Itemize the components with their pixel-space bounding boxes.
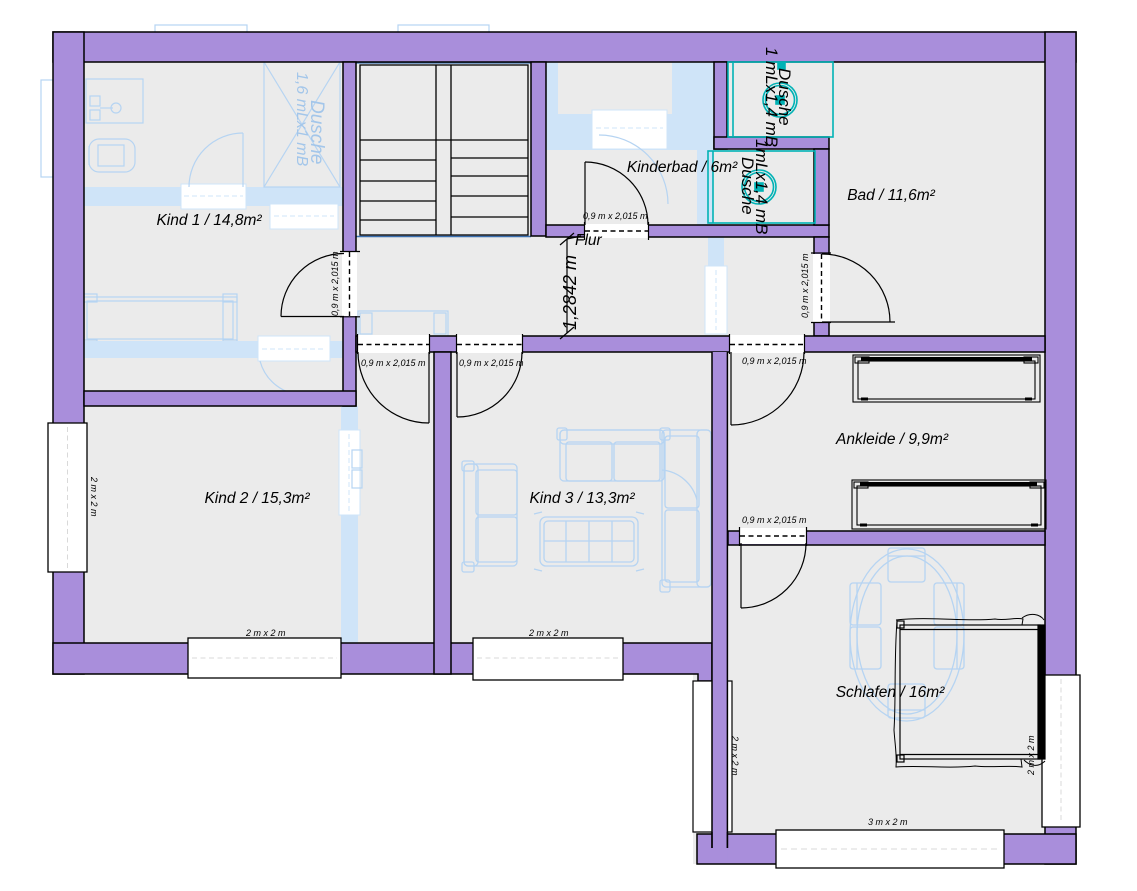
svg-text:2 m x 2 m: 2 m x 2 m	[1026, 735, 1036, 776]
svg-text:0,9 m x 2,015 m: 0,9 m x 2,015 m	[800, 253, 810, 318]
svg-text:0,9 m x 2,015 m: 0,9 m x 2,015 m	[459, 358, 524, 368]
svg-text:Bad / 11,6m²: Bad / 11,6m²	[847, 187, 935, 204]
svg-text:Kinderbad / 6m²: Kinderbad / 6m²	[627, 159, 738, 176]
svg-text:2 m x 2 m: 2 m x 2 m	[89, 476, 99, 517]
svg-text:0,9 m x 2,015 m: 0,9 m x 2,015 m	[583, 211, 648, 221]
svg-text:1 mLx1,4 mB: 1 mLx1,4 mB	[762, 47, 781, 147]
svg-text:3 m x 2 m: 3 m x 2 m	[868, 817, 908, 827]
svg-text:1mLx1,4 mB: 1mLx1,4 mB	[752, 139, 771, 234]
svg-text:Dusche: Dusche	[306, 100, 327, 164]
svg-text:Flur: Flur	[575, 232, 603, 249]
svg-text:0,9 m x 2,015 m: 0,9 m x 2,015 m	[742, 515, 807, 525]
svg-text:Kind 3 / 13,3m²: Kind 3 / 13,3m²	[529, 490, 635, 507]
svg-text:0,9 m x 2,015 m: 0,9 m x 2,015 m	[742, 356, 807, 366]
svg-text:Schlafen / 16m²: Schlafen / 16m²	[836, 684, 945, 701]
svg-text:0,9 m x 2,015 m: 0,9 m x 2,015 m	[330, 251, 340, 316]
svg-text:Kind 2 / 15,3m²: Kind 2 / 15,3m²	[204, 490, 310, 507]
svg-text:0,9 m x 2,015 m: 0,9 m x 2,015 m	[361, 358, 426, 368]
svg-text:2 m x 2 m: 2 m x 2 m	[730, 735, 740, 776]
svg-text:2 m x 2 m: 2 m x 2 m	[245, 628, 286, 638]
svg-text:Kind 1 / 14,8m²: Kind 1 / 14,8m²	[156, 212, 262, 229]
svg-text:Ankleide / 9,9m²: Ankleide / 9,9m²	[835, 431, 949, 448]
svg-text:1,2842 m: 1,2842 m	[560, 255, 580, 330]
svg-text:2 m x 2 m: 2 m x 2 m	[528, 628, 569, 638]
